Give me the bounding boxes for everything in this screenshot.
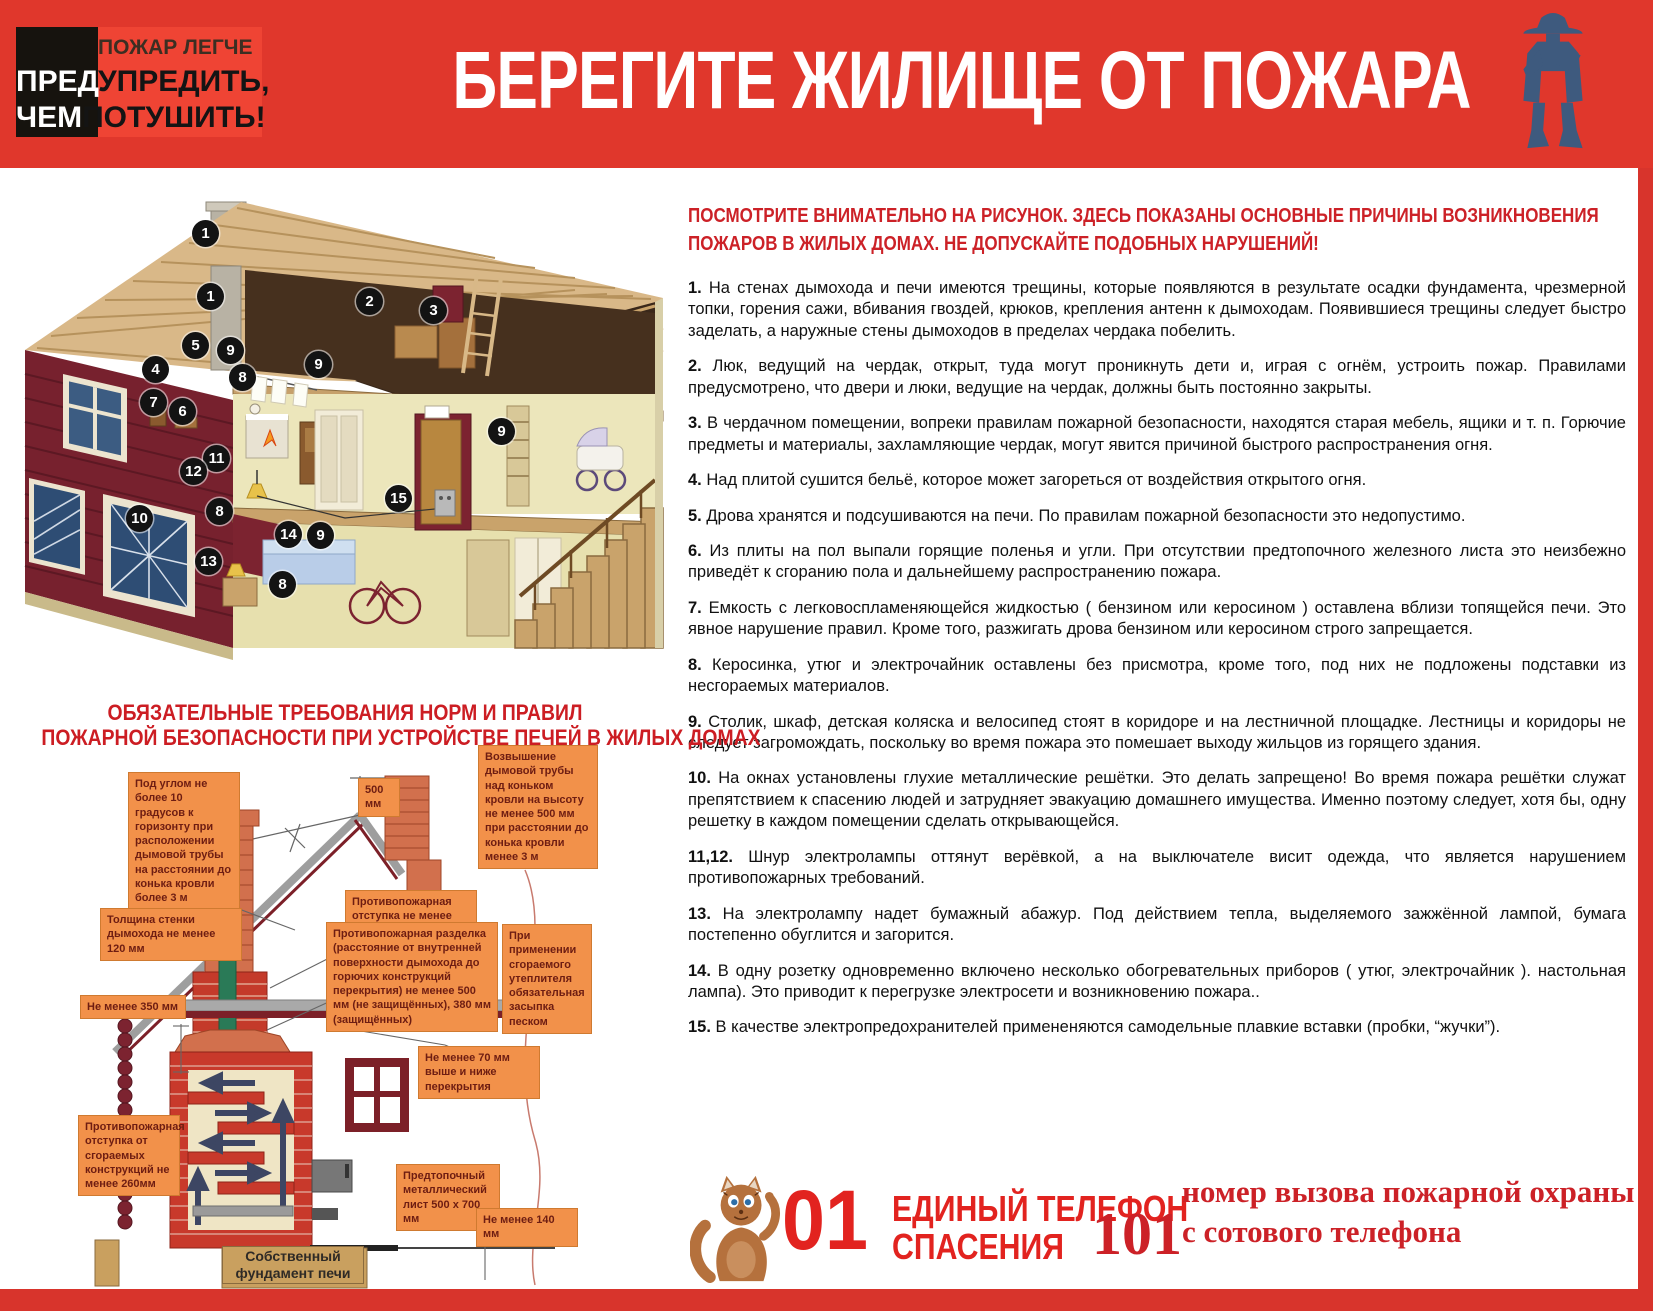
cause-number: 13. xyxy=(688,905,723,923)
cause-item: 11,12. Шнур электролампы оттянут верёвко… xyxy=(688,847,1626,890)
cause-number: 1. xyxy=(688,279,709,297)
cause-text: На электролампу надет бумажный абажур. П… xyxy=(688,905,1626,944)
cause-text: Люк, ведущий на чердак, открыт, туда мог… xyxy=(688,357,1626,396)
cause-item: 14. В одну розетку одновременно включено… xyxy=(688,961,1626,1004)
house-marker-15: 15 xyxy=(385,485,412,512)
badge-line1: ПОЖАР ЛЕГЧЕ xyxy=(98,37,253,58)
house-marker-13: 13 xyxy=(195,548,222,575)
cause-item: 3. В чердачном помещении, вопреки правил… xyxy=(688,413,1626,456)
stove-foundation-label: Собственный фундамент печи xyxy=(222,1246,364,1284)
cause-item: 15. В качестве электропредохранителей пр… xyxy=(688,1017,1626,1038)
cause-number: 10. xyxy=(688,769,718,787)
cause-number: 15. xyxy=(688,1018,716,1036)
cause-item: 8. Керосинка, утюг и электрочайник остав… xyxy=(688,655,1626,698)
house-marker-9: 9 xyxy=(305,351,332,378)
stove-callout: Не менее 140 мм xyxy=(476,1208,578,1247)
cause-text: В одну розетку одновременно включено нес… xyxy=(688,962,1626,1001)
cause-number: 4. xyxy=(688,471,706,489)
cause-number: 8. xyxy=(688,656,712,674)
header-band: ПОЖАР ЛЕГЧЕ ПРЕД УПРЕДИТЬ, ЧЕМ ПОТУШИТЬ!… xyxy=(0,0,1653,168)
cause-text: На стенах дымохода и печи имеются трещин… xyxy=(688,279,1626,340)
poster-title: БЕРЕГИТЕ ЖИЛИЩЕ ОТ ПОЖАРА xyxy=(452,34,1227,134)
cause-number: 5. xyxy=(688,507,706,525)
stove-callout: 500 мм xyxy=(358,778,400,817)
cause-number: 6. xyxy=(688,542,710,560)
stove-callout: Под углом не более 10 градусов к горизон… xyxy=(128,772,240,911)
house-marker-5: 5 xyxy=(182,332,209,359)
cause-number: 14. xyxy=(688,962,718,980)
house-marker-1: 1 xyxy=(192,220,219,247)
stove-callout: Не менее 350 мм xyxy=(80,995,186,1019)
cause-item: 4. Над плитой сушится бельё, которое мож… xyxy=(688,470,1626,491)
house-marker-3: 3 xyxy=(420,297,447,324)
stove-callout: Противопожарная разделка (расстояние от … xyxy=(326,922,498,1032)
stove-callout: Возвышение дымовой трубы над коньком кро… xyxy=(478,745,598,869)
cause-item: 9. Столик, шкаф, детская коляска и велос… xyxy=(688,712,1626,755)
house-marker-8: 8 xyxy=(229,364,256,391)
house-marker-2: 2 xyxy=(356,288,383,315)
cause-text: Дрова хранятся и подсушиваются на печи. … xyxy=(706,507,1465,525)
emergency-number-101: 101 xyxy=(1092,1204,1182,1264)
cause-item: 5. Дрова хранятся и подсушиваются на печ… xyxy=(688,506,1626,527)
stove-callout: Толщина стенки дымохода не менее 120 мм xyxy=(100,908,242,961)
house-cutaway-illustration: 112359498769111215810149138 xyxy=(15,178,670,668)
house-marker-1: 1 xyxy=(197,283,224,310)
badge-line3-left: ЧЕМ xyxy=(16,103,82,133)
stove-callout: Не менее 70 мм выше и ниже перекрытия xyxy=(418,1046,540,1099)
cause-text: В качестве электропредохранителей примен… xyxy=(716,1018,1501,1036)
house-marker-11: 11 xyxy=(203,445,230,472)
stove-callout: При применении сгораемого утеплителя обя… xyxy=(502,924,592,1034)
cause-item: 2. Люк, ведущий на чердак, открыт, туда … xyxy=(688,356,1626,399)
cause-text: Столик, шкаф, детская коляска и велосипе… xyxy=(688,713,1626,752)
house-marker-8: 8 xyxy=(206,498,233,525)
cause-text: Керосинка, утюг и электрочайник оставлен… xyxy=(688,656,1626,695)
cause-text: На окнах установлены глухие металлически… xyxy=(688,769,1626,830)
cause-item: 13. На электролампу надет бумажный абажу… xyxy=(688,904,1626,947)
bottom-red-bar xyxy=(0,1289,1653,1311)
causes-list: 1. На стенах дымохода и печи имеются тре… xyxy=(688,278,1626,1039)
cause-number: 3. xyxy=(688,414,707,432)
right-edge-strip xyxy=(1638,0,1653,1311)
cause-text: Шнур электролампы оттянут верёвкой, а на… xyxy=(688,848,1626,887)
cause-number: 11,12. xyxy=(688,848,748,866)
cause-item: 1. На стенах дымохода и печи имеются тре… xyxy=(688,278,1626,342)
cause-text: Емкость с легковоспламеняющейся жидкость… xyxy=(688,599,1626,638)
house-marker-10: 10 xyxy=(126,505,153,532)
cause-item: 6. Из плиты на пол выпали горящие полень… xyxy=(688,541,1626,584)
cause-text: Над плитой сушится бельё, которое может … xyxy=(706,471,1366,489)
house-marker-9: 9 xyxy=(217,337,244,364)
cause-item: 10. На окнах установлены глухие металлич… xyxy=(688,768,1626,832)
house-marker-8: 8 xyxy=(269,571,296,598)
cell-phone-note: номер вызова пожарной охраны с сотового … xyxy=(1182,1172,1642,1253)
badge-line2-right: УПРЕДИТЬ, xyxy=(98,67,269,97)
house-marker-9: 9 xyxy=(307,522,334,549)
cause-item: 7. Емкость с легковоспламеняющейся жидко… xyxy=(688,598,1626,641)
badge-line2-left: ПРЕД xyxy=(16,67,98,97)
intro-warning-text: ПОСМОТРИТЕ ВНИМАТЕЛЬНО НА РИСУНОК. ЗДЕСЬ… xyxy=(688,202,1627,259)
cause-number: 7. xyxy=(688,599,709,617)
house-marker-14: 14 xyxy=(275,521,302,548)
badge-line3-right: ПОТУШИТЬ! xyxy=(82,103,265,133)
cause-text: Из плиты на пол выпали горящие поленья и… xyxy=(688,542,1626,581)
firefighter-icon xyxy=(1488,10,1618,158)
cause-text: В чердачном помещении, вопреки правилам … xyxy=(688,414,1626,453)
house-marker-6: 6 xyxy=(169,398,196,425)
house-marker-7: 7 xyxy=(140,389,167,416)
house-marker-9: 9 xyxy=(488,418,515,445)
fire-safety-poster: ПОЖАР ЛЕГЧЕ ПРЕД УПРЕДИТЬ, ЧЕМ ПОТУШИТЬ!… xyxy=(0,0,1653,1311)
stove-callout: Противопожарная отступка от сгораемых ко… xyxy=(78,1115,180,1196)
house-marker-4: 4 xyxy=(142,356,169,383)
house-drawing xyxy=(15,178,670,668)
emergency-number-01: 01 xyxy=(782,1178,868,1262)
cause-number: 2. xyxy=(688,357,713,375)
house-marker-12: 12 xyxy=(180,458,207,485)
slogan-badge: ПОЖАР ЛЕГЧЕ ПРЕД УПРЕДИТЬ, ЧЕМ ПОТУШИТЬ! xyxy=(16,27,262,137)
